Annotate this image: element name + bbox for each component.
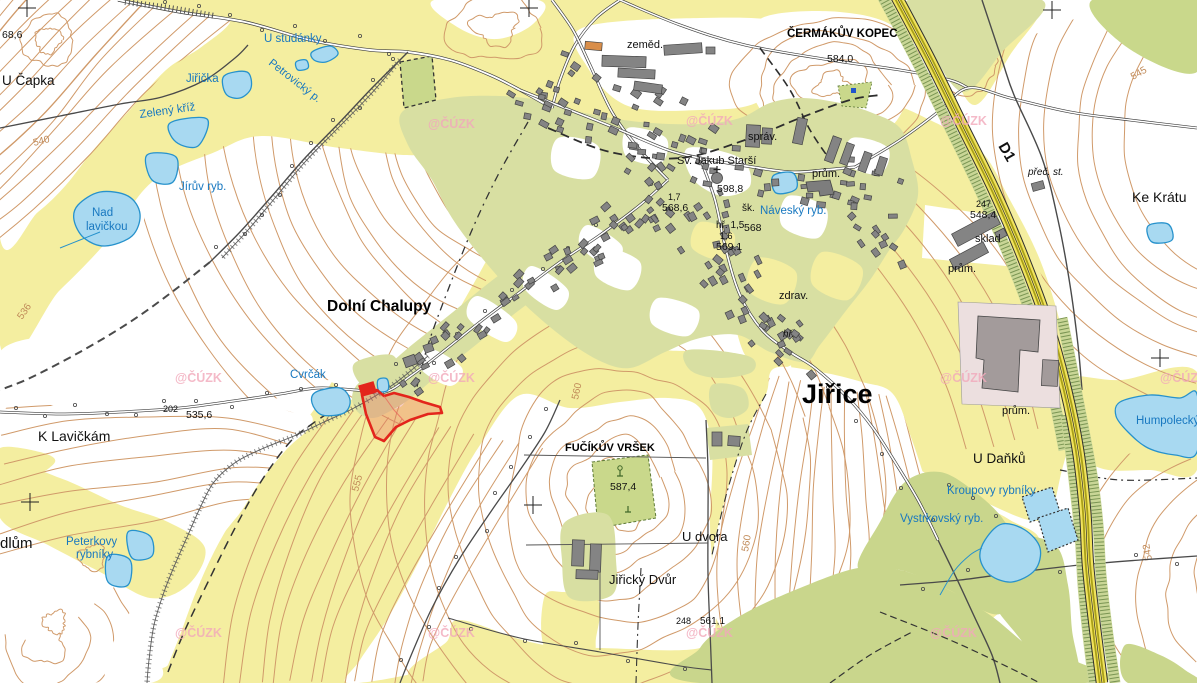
svg-text:@ČÚZK: @ČÚZK [940,370,987,385]
svg-text:584,0: 584,0 [827,53,853,65]
svg-text:569,1: 569,1 [716,241,742,253]
svg-text:@ČÚZK: @ČÚZK [175,370,222,385]
svg-text:U Čapka: U Čapka [2,73,55,88]
svg-text:U dvora: U dvora [682,529,728,544]
svg-text:247: 247 [976,199,991,209]
svg-text:@ČÚZK: @ČÚZK [930,625,977,640]
svg-text:568,6: 568,6 [662,202,688,214]
svg-text:K Lavičkám: K Lavičkám [38,428,110,444]
svg-text:@ČÚZK: @ČÚZK [175,625,222,640]
svg-text:Jiřička: Jiřička [186,73,219,85]
svg-text:Peterkovy: Peterkovy [66,536,117,548]
svg-text:248: 248 [676,616,691,626]
svg-text:587,4: 587,4 [610,481,636,493]
svg-text:202: 202 [163,404,178,414]
svg-text:správ.: správ. [748,131,777,143]
svg-text:@ČÚZK: @ČÚZK [686,625,733,640]
svg-text:hř. 1,5: hř. 1,5 [716,220,745,231]
svg-text:Kroupovy rybníky: Kroupovy rybníky [947,485,1036,497]
svg-text:@ČÚZK: @ČÚZK [428,625,475,640]
svg-text:@ČÚZK: @ČÚZK [428,370,475,385]
svg-text:Nad: Nad [92,207,113,219]
svg-text:lavičkou: lavičkou [86,221,128,233]
svg-text:Jírův ryb.: Jírův ryb. [179,181,226,193]
svg-text:U studánky: U studánky [264,33,322,45]
svg-text:1,7: 1,7 [668,192,681,202]
svg-text:U Daňků: U Daňků [973,451,1026,466]
svg-text:568: 568 [744,222,762,234]
svg-text:dlům: dlům [0,535,33,552]
svg-text:@ČÚZK: @ČÚZK [940,113,987,128]
svg-text:šk.: šk. [742,203,755,214]
svg-text:1,6: 1,6 [720,231,733,241]
svg-text:@ČÚZK: @ČÚZK [428,116,475,131]
svg-text:Ke Krátu: Ke Krátu [1132,189,1186,205]
svg-text:prům.: prům. [812,168,840,180]
svg-text:prům.: prům. [948,263,976,275]
svg-text:přeč. st.: přeč. st. [1027,167,1064,178]
svg-text:Humpolecký: Humpolecký [1136,415,1197,427]
svg-text:Jiřice: Jiřice [802,379,873,409]
svg-text:zdrav.: zdrav. [779,290,808,302]
svg-text:rybníky: rybníky [76,549,113,561]
svg-text:Vystrkovský ryb.: Vystrkovský ryb. [900,513,983,525]
svg-text:hř.: hř. [783,329,795,340]
svg-text:@ČÚZK: @ČÚZK [686,113,733,128]
svg-text:FUČÍKŮV VRŠEK: FUČÍKŮV VRŠEK [565,440,655,454]
svg-text:sklad: sklad [975,233,1001,245]
svg-text:Jiřický Dvůr: Jiřický Dvůr [609,572,677,587]
svg-text:Dolní Chalupy: Dolní Chalupy [327,298,432,315]
svg-text:Sv. Jakub Starší: Sv. Jakub Starší [677,155,756,167]
svg-text:Náveský ryb.: Náveský ryb. [760,205,826,217]
svg-text:561,1: 561,1 [700,616,725,627]
svg-text:535,6: 535,6 [186,409,212,421]
svg-text:ČERMÁKŮV KOPEC: ČERMÁKŮV KOPEC [787,26,898,40]
svg-text:prům.: prům. [1002,405,1030,417]
svg-text:598,8: 598,8 [717,183,743,195]
svg-text:@ČÚZK: @ČÚZK [1160,370,1197,385]
svg-text:zeměd.: zeměd. [627,39,663,51]
svg-text:68,6: 68,6 [2,29,23,41]
svg-text:Cvrčák: Cvrčák [290,369,326,381]
svg-text:548,4: 548,4 [970,209,996,221]
